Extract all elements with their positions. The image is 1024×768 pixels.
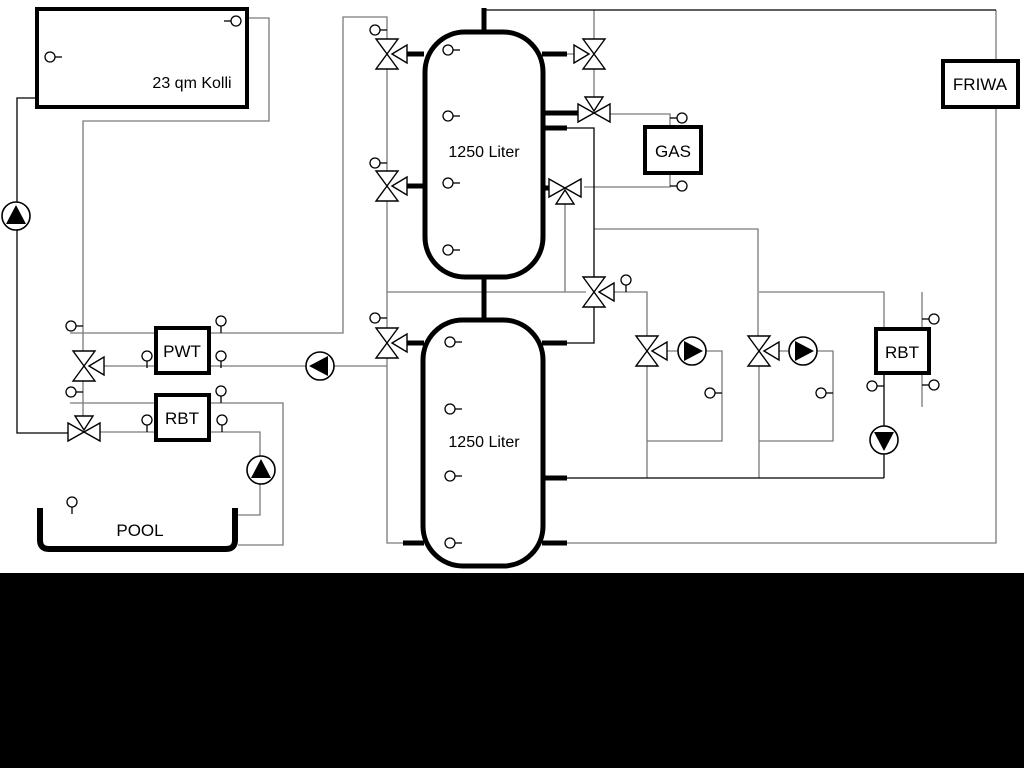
rbt-left-label: RBT [165,409,199,428]
pump-pool-icon [247,456,275,484]
pump-heating-circuit-2-icon [789,337,817,365]
pump-heating-circuit-1-icon [678,337,706,365]
buffer-tank-bottom-label: 1250 Liter [448,434,520,451]
rbt-right-label: RBT [885,343,919,362]
pool-label: POOL [116,521,163,540]
solar-collector-box [37,9,247,107]
gas-label: GAS [655,142,691,161]
friwa-label: FRIWA [953,75,1008,94]
pump-rbt-right-icon [870,426,898,454]
hydraulic-schematic: 23 qm Kolli 1250 Liter 1250 Liter PWT RB… [0,0,1024,768]
pump-solar-icon [2,202,30,230]
pump-pwt-icon [306,352,334,380]
hydraulic-schematic-screen: 23 qm Kolli 1250 Liter 1250 Liter PWT RB… [0,0,1024,768]
pwt-label: PWT [163,342,201,361]
bottom-black-band [0,573,1024,768]
buffer-tank-top-label: 1250 Liter [448,144,520,161]
collector-label: 23 qm Kolli [152,75,231,92]
